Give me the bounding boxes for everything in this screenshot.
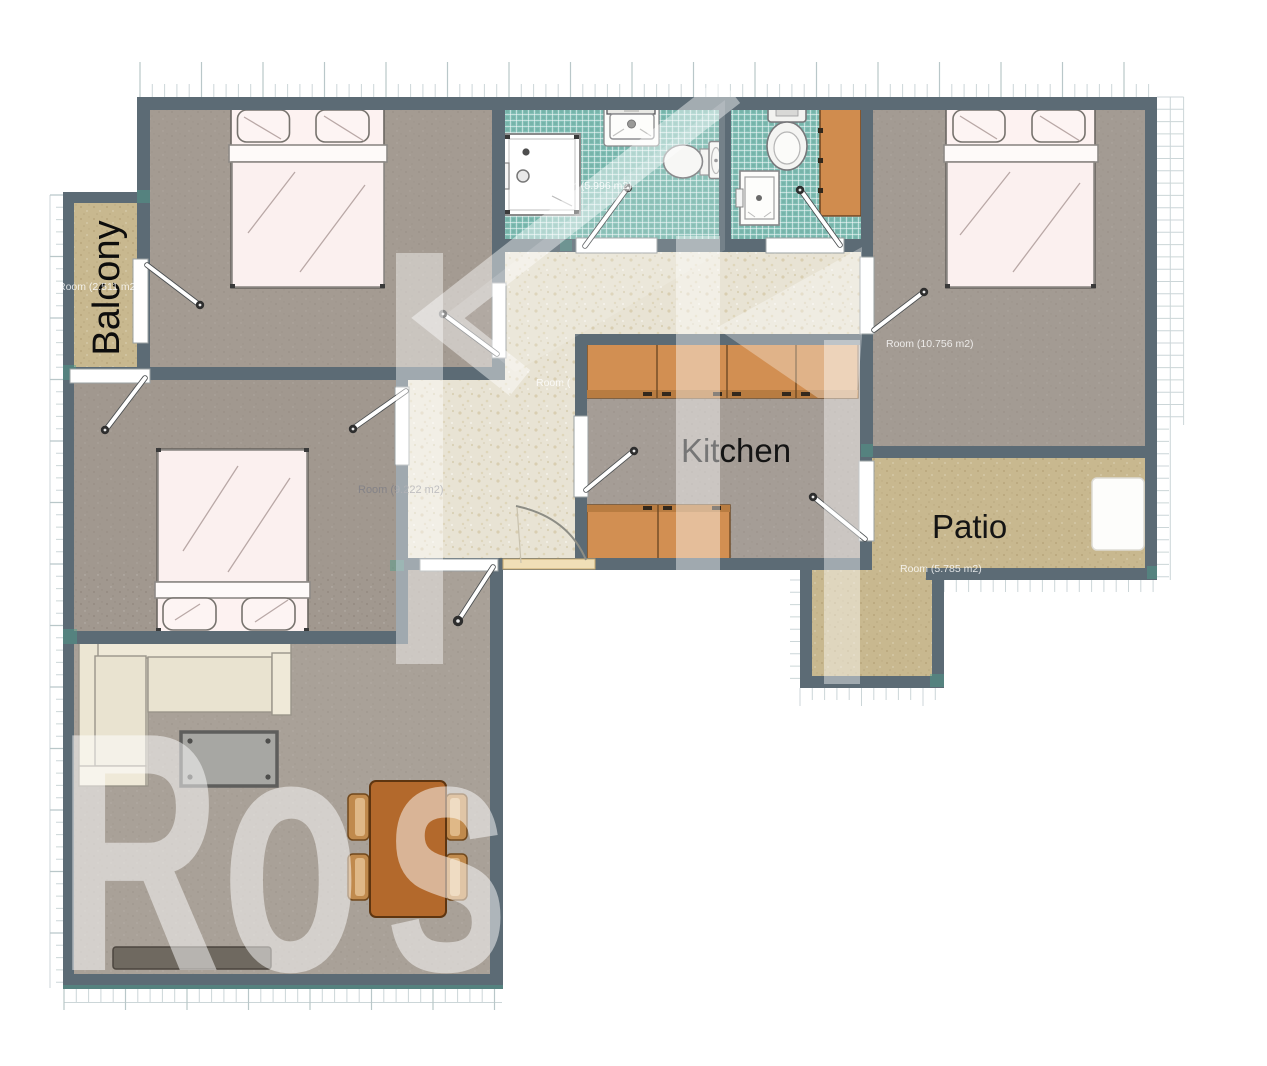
svg-text:Room (5.785 m2): Room (5.785 m2) [900,563,982,575]
svg-text:Ros: Ros [57,663,510,1043]
svg-text:Patio: Patio [932,508,1007,545]
svg-text:Room (10.756 m2): Room (10.756 m2) [886,338,974,350]
svg-text:Room (2.511 m2): Room (2.511 m2) [58,281,139,293]
svg-text:Room (: Room ( [536,377,571,389]
